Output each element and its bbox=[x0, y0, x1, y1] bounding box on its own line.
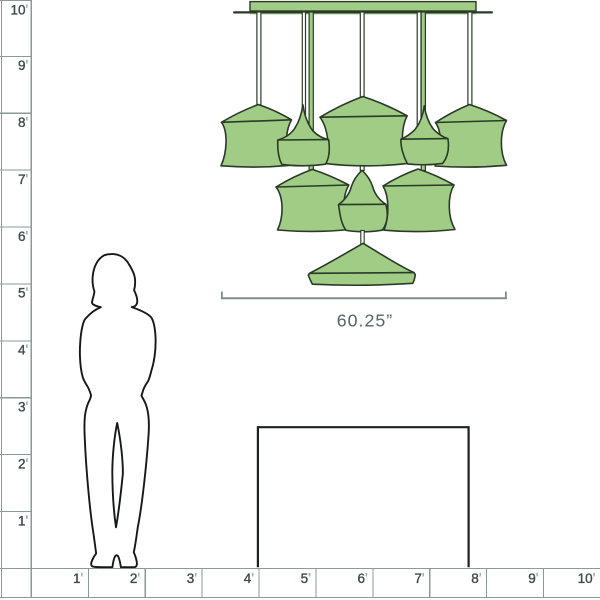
svg-text:5': 5' bbox=[301, 571, 312, 587]
svg-text:2': 2' bbox=[130, 571, 141, 587]
svg-text:4': 4' bbox=[18, 343, 29, 359]
svg-text:6': 6' bbox=[18, 229, 29, 245]
svg-text:60.25”: 60.25” bbox=[337, 311, 393, 331]
svg-text:7': 7' bbox=[414, 571, 425, 587]
svg-text:6': 6' bbox=[358, 571, 369, 587]
svg-text:5': 5' bbox=[18, 286, 29, 302]
svg-text:3': 3' bbox=[18, 400, 29, 416]
svg-text:9': 9' bbox=[528, 571, 539, 587]
svg-text:10': 10' bbox=[578, 571, 596, 587]
svg-text:8': 8' bbox=[471, 571, 482, 587]
svg-text:3': 3' bbox=[187, 571, 198, 587]
svg-text:1': 1' bbox=[18, 513, 29, 529]
svg-text:8': 8' bbox=[18, 115, 29, 131]
svg-text:9': 9' bbox=[18, 58, 29, 74]
svg-text:4': 4' bbox=[244, 571, 255, 587]
svg-text:7': 7' bbox=[18, 172, 29, 188]
svg-text:2': 2' bbox=[18, 456, 29, 472]
svg-text:1': 1' bbox=[73, 571, 84, 587]
svg-text:10': 10' bbox=[10, 2, 28, 18]
